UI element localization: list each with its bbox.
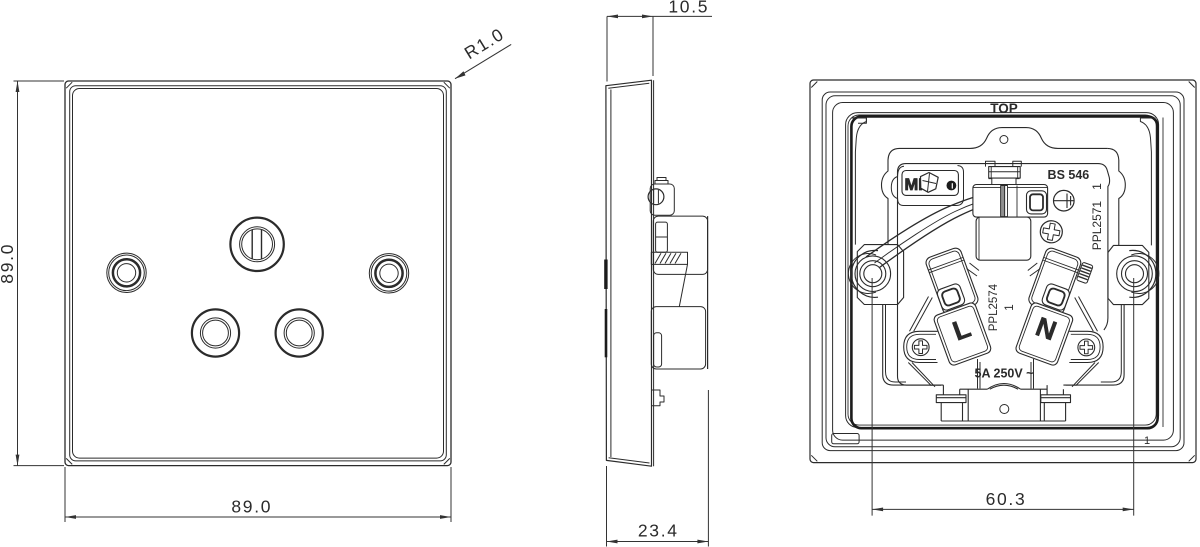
svg-text:1: 1 [1090, 183, 1104, 190]
svg-text:5A 250V ~: 5A 250V ~ [975, 367, 1034, 381]
svg-text:1: 1 [1004, 304, 1016, 310]
svg-text:TOP: TOP [990, 101, 1018, 116]
svg-text:R1.0: R1.0 [461, 24, 508, 64]
svg-text:10.5: 10.5 [668, 0, 709, 17]
svg-text:89.0: 89.0 [231, 497, 272, 517]
svg-text:23.4: 23.4 [638, 521, 679, 541]
svg-text:1: 1 [1144, 435, 1150, 447]
svg-text:89.0: 89.0 [0, 243, 17, 284]
svg-text:PPL2571: PPL2571 [1090, 201, 1104, 251]
svg-text:PPL2574: PPL2574 [988, 283, 1000, 331]
svg-text:BS 546: BS 546 [1048, 168, 1090, 182]
svg-text:60.3: 60.3 [986, 489, 1027, 509]
